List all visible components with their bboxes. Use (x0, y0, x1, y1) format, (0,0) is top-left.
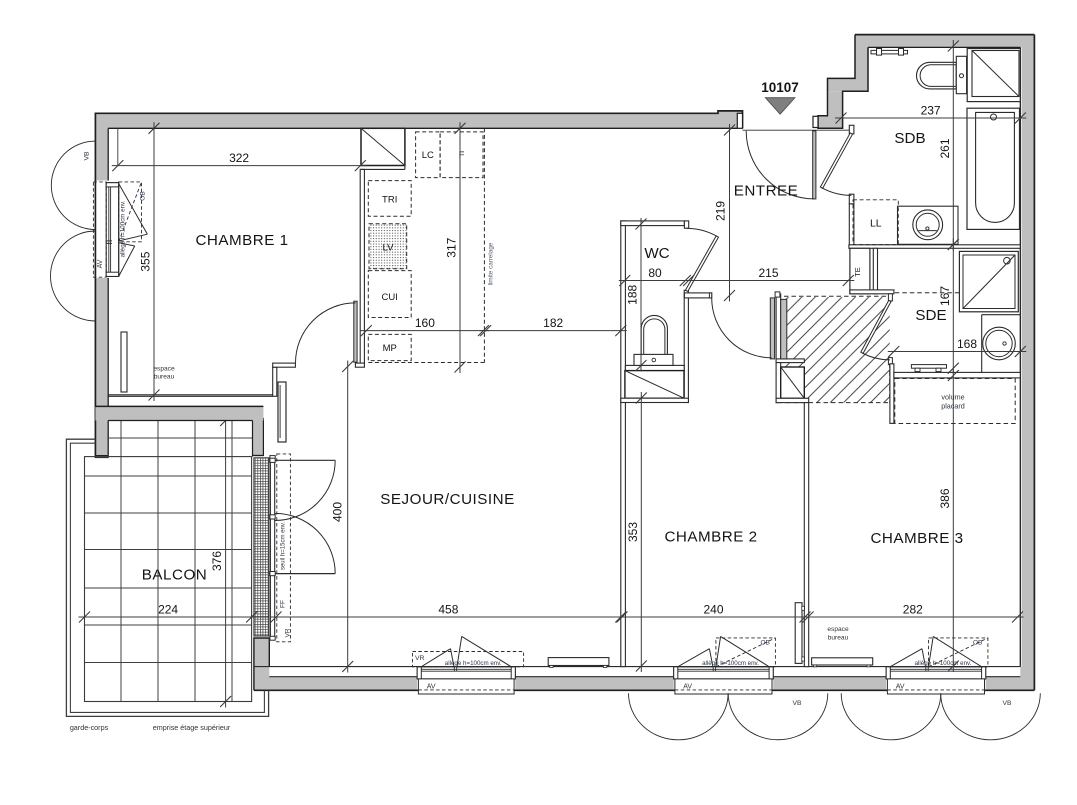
svg-text:SEJOUR/CUISINE: SEJOUR/CUISINE (380, 491, 514, 508)
svg-text:160: 160 (415, 316, 435, 330)
svg-text:261: 261 (938, 138, 952, 158)
svg-text:10107: 10107 (761, 80, 799, 95)
svg-text:219: 219 (714, 201, 728, 221)
svg-text:VR: VR (415, 655, 425, 662)
svg-text:CHAMBRE 3: CHAMBRE 3 (870, 530, 963, 547)
svg-text:317: 317 (445, 237, 459, 257)
svg-text:LC: LC (422, 150, 434, 161)
svg-text:allège h=100cm env.: allège h=100cm env. (915, 660, 972, 667)
svg-text:322: 322 (229, 151, 249, 165)
svg-text:F: F (459, 150, 465, 161)
svg-text:386: 386 (938, 488, 952, 508)
svg-text:168: 168 (957, 337, 977, 351)
svg-text:SDE: SDE (915, 307, 946, 324)
svg-text:458: 458 (438, 603, 458, 617)
svg-text:espace: espace (827, 626, 849, 633)
svg-text:80: 80 (648, 266, 662, 280)
svg-text:355: 355 (139, 251, 153, 271)
svg-text:CUI: CUI (382, 292, 398, 303)
svg-text:CHAMBRE 2: CHAMBRE 2 (664, 529, 757, 546)
svg-text:allège h=100cm env.: allège h=100cm env. (702, 660, 759, 667)
svg-text:376: 376 (210, 551, 224, 571)
svg-text:espace: espace (153, 366, 175, 373)
svg-text:400: 400 (331, 502, 345, 522)
svg-text:CHAMBRE 1: CHAMBRE 1 (195, 232, 288, 249)
svg-text:bureau: bureau (828, 635, 849, 642)
svg-text:MP: MP (383, 343, 397, 354)
svg-text:ENTREE: ENTREE (734, 183, 799, 200)
svg-text:emprise étage supérieur: emprise étage supérieur (153, 723, 231, 732)
svg-text:AV: AV (97, 259, 104, 268)
svg-text:AV: AV (896, 683, 905, 690)
svg-text:240: 240 (703, 603, 723, 617)
svg-text:167: 167 (938, 286, 952, 306)
svg-text:VR: VR (285, 628, 292, 637)
svg-text:215: 215 (758, 266, 778, 280)
svg-text:182: 182 (543, 316, 563, 330)
svg-text:TRI: TRI (382, 195, 397, 206)
svg-text:VB: VB (792, 700, 802, 707)
svg-text:bureau: bureau (154, 374, 175, 381)
svg-text:allège h=100cm env.: allège h=100cm env. (445, 660, 502, 667)
svg-text:353: 353 (626, 522, 640, 542)
svg-text:OB: OB (140, 191, 147, 200)
svg-text:237: 237 (921, 104, 941, 118)
svg-text:FF: FF (280, 600, 287, 608)
svg-text:garde-corps: garde-corps (70, 723, 109, 732)
svg-text:LV: LV (383, 243, 395, 254)
svg-text:seuil h=15cm env.: seuil h=15cm env. (281, 522, 287, 570)
svg-text:282: 282 (903, 603, 923, 617)
svg-text:WC: WC (644, 245, 669, 262)
svg-text:LL: LL (870, 218, 882, 230)
svg-text:limite carrelage: limite carrelage (488, 242, 495, 285)
svg-text:SDB: SDB (894, 130, 925, 147)
svg-text:AV: AV (427, 683, 436, 690)
svg-text:224: 224 (158, 603, 178, 617)
svg-text:BALCON: BALCON (142, 567, 207, 584)
svg-text:VB: VB (1002, 700, 1012, 707)
svg-text:188: 188 (626, 284, 640, 304)
svg-text:AV: AV (683, 683, 692, 690)
svg-text:allège h=100cm env.: allège h=100cm env. (120, 200, 127, 257)
svg-text:VB: VB (84, 151, 91, 161)
svg-text:OB: OB (973, 640, 982, 647)
svg-text:OB: OB (760, 640, 769, 647)
